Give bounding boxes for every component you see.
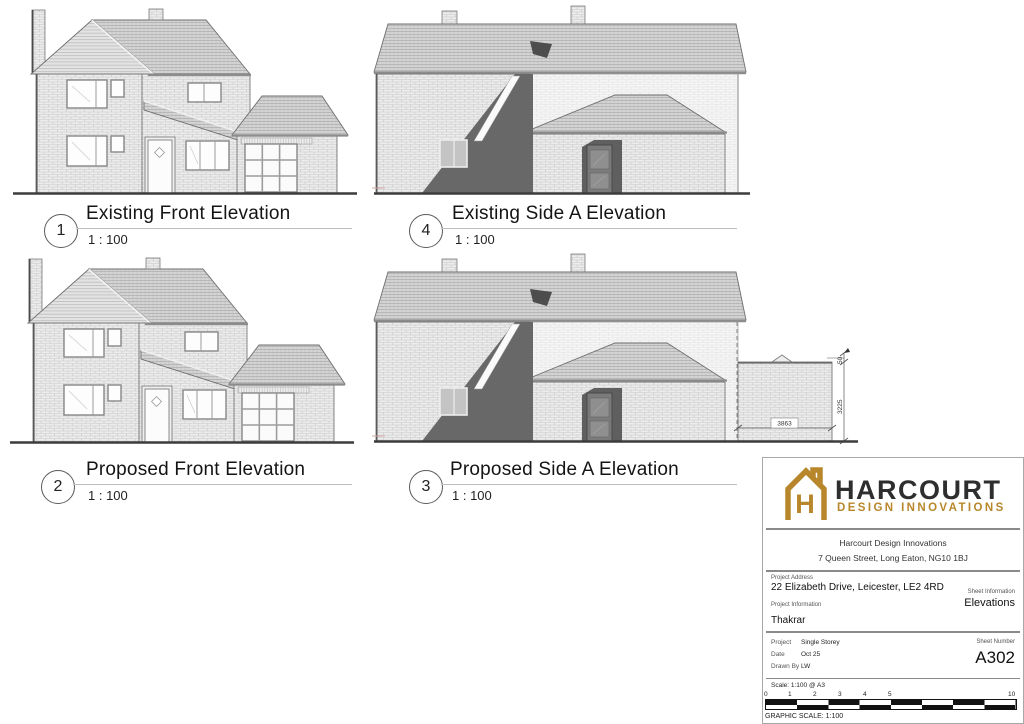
divider bbox=[766, 631, 1020, 633]
rear-wall bbox=[525, 134, 725, 193]
view-title-existing-side: Existing Side A Elevation bbox=[452, 203, 666, 225]
garage-door bbox=[245, 144, 297, 192]
company-address: 7 Queen Street, Long Eaton, NG10 1BJ bbox=[763, 553, 1023, 563]
scale-tick-0: 0 bbox=[764, 691, 768, 698]
view-number-1: 1 bbox=[44, 214, 78, 248]
graphic-scale-bar bbox=[765, 699, 1017, 710]
harcourt-logo-icon: H bbox=[782, 467, 828, 521]
existing-front-elevation-drawing bbox=[10, 4, 358, 196]
sheet-number-label: Sheet Number bbox=[976, 639, 1015, 645]
view-title-underline bbox=[442, 228, 737, 229]
existing-side-elevation-drawing bbox=[372, 4, 752, 196]
date-value: Oct 25 bbox=[801, 651, 820, 658]
logo-tagline: DESIGN INNOVATIONS bbox=[837, 502, 1006, 514]
graphic-scale-label: GRAPHIC SCALE: 1:100 bbox=[765, 713, 843, 720]
view-title-existing-front: Existing Front Elevation bbox=[86, 203, 290, 225]
main-roof bbox=[374, 24, 746, 72]
title-block: H HARCOURT DESIGN INNOVATIONS Harcourt D… bbox=[762, 457, 1024, 724]
proposed-side-elevation-drawing: 50 3225 3863 bbox=[372, 252, 862, 446]
house-front bbox=[10, 258, 354, 443]
view-title-underline bbox=[442, 484, 737, 485]
divider bbox=[766, 678, 1020, 679]
view-scale: 1 : 100 bbox=[88, 488, 128, 503]
chimney bbox=[442, 259, 457, 273]
extension-rooflight bbox=[772, 355, 792, 362]
chimney bbox=[571, 254, 585, 273]
view-title-proposed-front: Proposed Front Elevation bbox=[86, 459, 305, 481]
view-title-underline bbox=[77, 228, 352, 229]
ridge-chimney bbox=[146, 258, 160, 269]
project-value: Single Storey bbox=[801, 639, 840, 646]
drawn-by-label: Drawn By bbox=[771, 663, 799, 670]
view-scale: 1 : 100 bbox=[452, 488, 492, 503]
extension-wall bbox=[738, 362, 832, 441]
sheet-information-value: Elevations bbox=[964, 597, 1015, 609]
scale-tick-4: 4 bbox=[863, 691, 867, 698]
dim-3225: 3225 bbox=[837, 399, 844, 414]
project-address-label: Project Address bbox=[771, 575, 813, 581]
scale-tick-10: 10 bbox=[1008, 691, 1015, 698]
dim-3863: 3863 bbox=[777, 421, 792, 428]
view-number-4: 4 bbox=[409, 214, 443, 248]
house-side: 50 3225 3863 bbox=[372, 254, 858, 444]
divider bbox=[766, 528, 1020, 530]
view-title-proposed-side: Proposed Side A Elevation bbox=[450, 459, 679, 481]
scale-tick-5: 5 bbox=[888, 691, 892, 698]
svg-text:H: H bbox=[795, 489, 815, 519]
scale-tick-3: 3 bbox=[838, 691, 842, 698]
ridge-chimney bbox=[149, 9, 163, 20]
house-side bbox=[372, 6, 750, 194]
project-information-label: Project Information bbox=[771, 602, 821, 608]
scale-tick-2: 2 bbox=[813, 691, 817, 698]
project-address-value: 22 Elizabeth Drive, Leicester, LE2 4RD bbox=[771, 582, 944, 593]
date-label: Date bbox=[771, 651, 785, 658]
view-scale: 1 : 100 bbox=[455, 232, 495, 247]
divider bbox=[766, 570, 1020, 572]
rear-wall bbox=[525, 382, 725, 441]
view-scale: 1 : 100 bbox=[88, 232, 128, 247]
drawn-by-value: LW bbox=[801, 663, 810, 670]
proposed-front-elevation-drawing bbox=[7, 253, 355, 445]
scale-note: Scale: 1:100 @ A3 bbox=[771, 682, 825, 689]
main-roof bbox=[374, 272, 746, 320]
sheet-number-value: A302 bbox=[975, 648, 1015, 668]
view-title-underline bbox=[74, 484, 352, 485]
chimney bbox=[571, 6, 585, 25]
sheet-information-label: Sheet Information bbox=[968, 589, 1015, 595]
company-name: Harcourt Design Innovations bbox=[763, 538, 1023, 548]
scale-tick-1: 1 bbox=[788, 691, 792, 698]
drawing-sheet: 50 3225 3863 1 Existing Front Elevation … bbox=[0, 0, 1024, 724]
dim-50: 50 bbox=[837, 356, 844, 364]
view-number-3: 3 bbox=[409, 470, 443, 504]
garage-door bbox=[242, 393, 294, 441]
view-number-2: 2 bbox=[41, 470, 75, 504]
house-front bbox=[13, 9, 357, 194]
project-information-value: Thakrar bbox=[771, 615, 805, 626]
chimney bbox=[442, 11, 457, 25]
project-label: Project bbox=[771, 639, 791, 646]
